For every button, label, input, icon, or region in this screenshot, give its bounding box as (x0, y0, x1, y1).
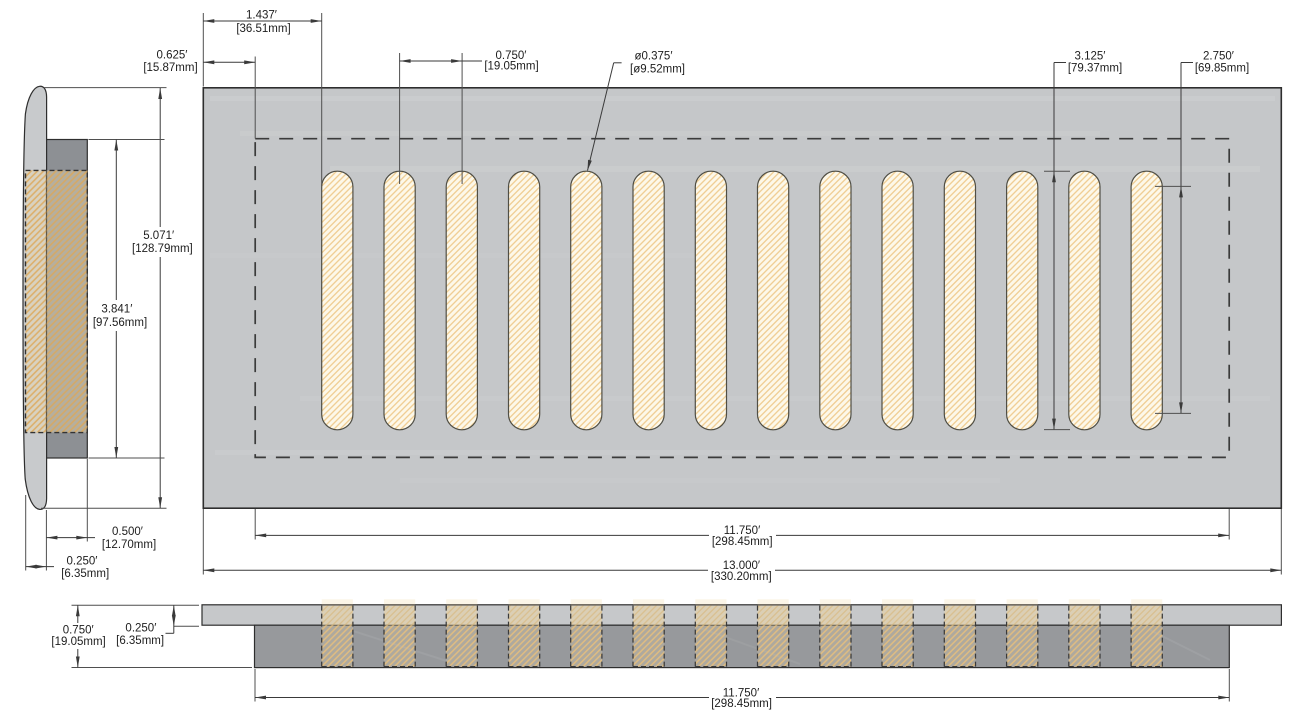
svg-text:[19.05mm]: [19.05mm] (484, 60, 538, 72)
svg-text:[36.51mm]: [36.51mm] (236, 23, 290, 35)
svg-text:[12.70mm]: [12.70mm] (102, 539, 156, 551)
svg-text:0.750′: 0.750′ (63, 625, 94, 637)
svg-text:[15.87mm]: [15.87mm] (143, 62, 197, 74)
svg-text:1.437′: 1.437′ (246, 10, 277, 22)
svg-text:[6.35mm]: [6.35mm] (116, 635, 164, 647)
svg-text:ø0.375′: ø0.375′ (635, 50, 673, 62)
svg-text:5.071′: 5.071′ (143, 230, 174, 242)
svg-text:[6.35mm]: [6.35mm] (61, 568, 109, 580)
svg-text:0.625′: 0.625′ (157, 50, 188, 62)
svg-text:[ø9.52mm]: [ø9.52mm] (630, 63, 685, 75)
svg-text:[69.85mm]: [69.85mm] (1195, 62, 1249, 74)
svg-text:0.250′: 0.250′ (67, 555, 98, 567)
svg-text:0.500′: 0.500′ (112, 526, 143, 538)
svg-text:[128.79mm]: [128.79mm] (132, 243, 193, 255)
svg-text:[298.45mm]: [298.45mm] (711, 698, 772, 710)
svg-text:0.250′: 0.250′ (125, 623, 156, 635)
svg-text:3.125′: 3.125′ (1075, 50, 1106, 62)
svg-text:[19.05mm]: [19.05mm] (51, 636, 105, 648)
svg-text:[298.45mm]: [298.45mm] (712, 536, 773, 548)
svg-text:3.841′: 3.841′ (101, 304, 132, 316)
svg-text:2.750′: 2.750′ (1203, 50, 1234, 62)
svg-text:[330.20mm]: [330.20mm] (711, 571, 772, 583)
svg-text:[97.56mm]: [97.56mm] (93, 317, 147, 329)
svg-text:[79.37mm]: [79.37mm] (1068, 62, 1122, 74)
